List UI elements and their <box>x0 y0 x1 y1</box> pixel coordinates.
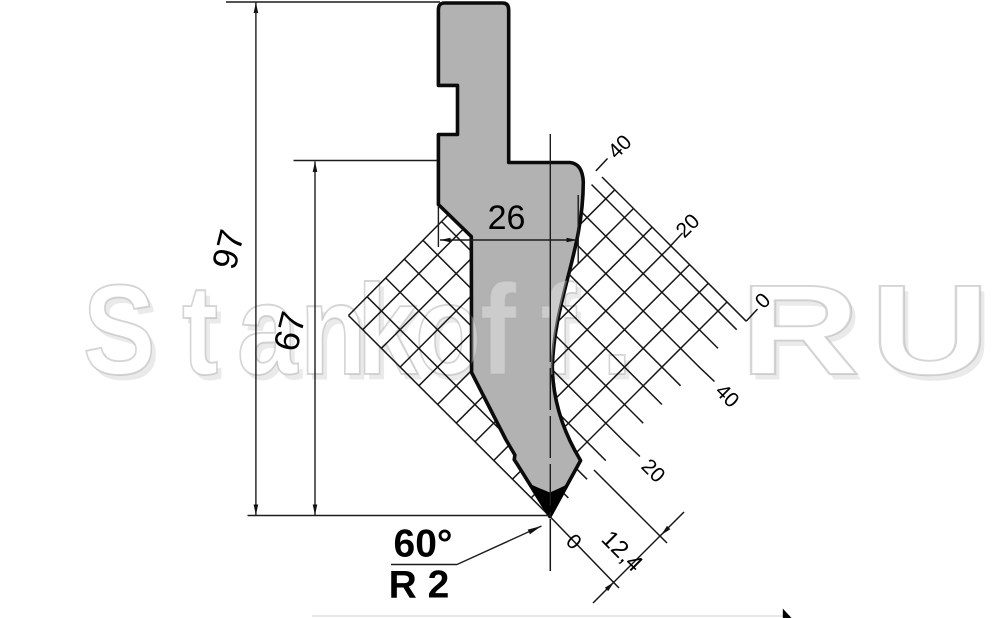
svg-text:20: 20 <box>637 455 670 488</box>
svg-text:26: 26 <box>488 199 526 237</box>
svg-text:R 2: R 2 <box>389 564 450 607</box>
svg-text:40: 40 <box>604 131 637 164</box>
svg-text:40: 40 <box>711 380 744 413</box>
svg-text:60°: 60° <box>394 523 453 566</box>
svg-text:20: 20 <box>672 210 705 243</box>
svg-text:12,4: 12,4 <box>596 525 648 577</box>
svg-text:RU: RU <box>740 259 990 401</box>
